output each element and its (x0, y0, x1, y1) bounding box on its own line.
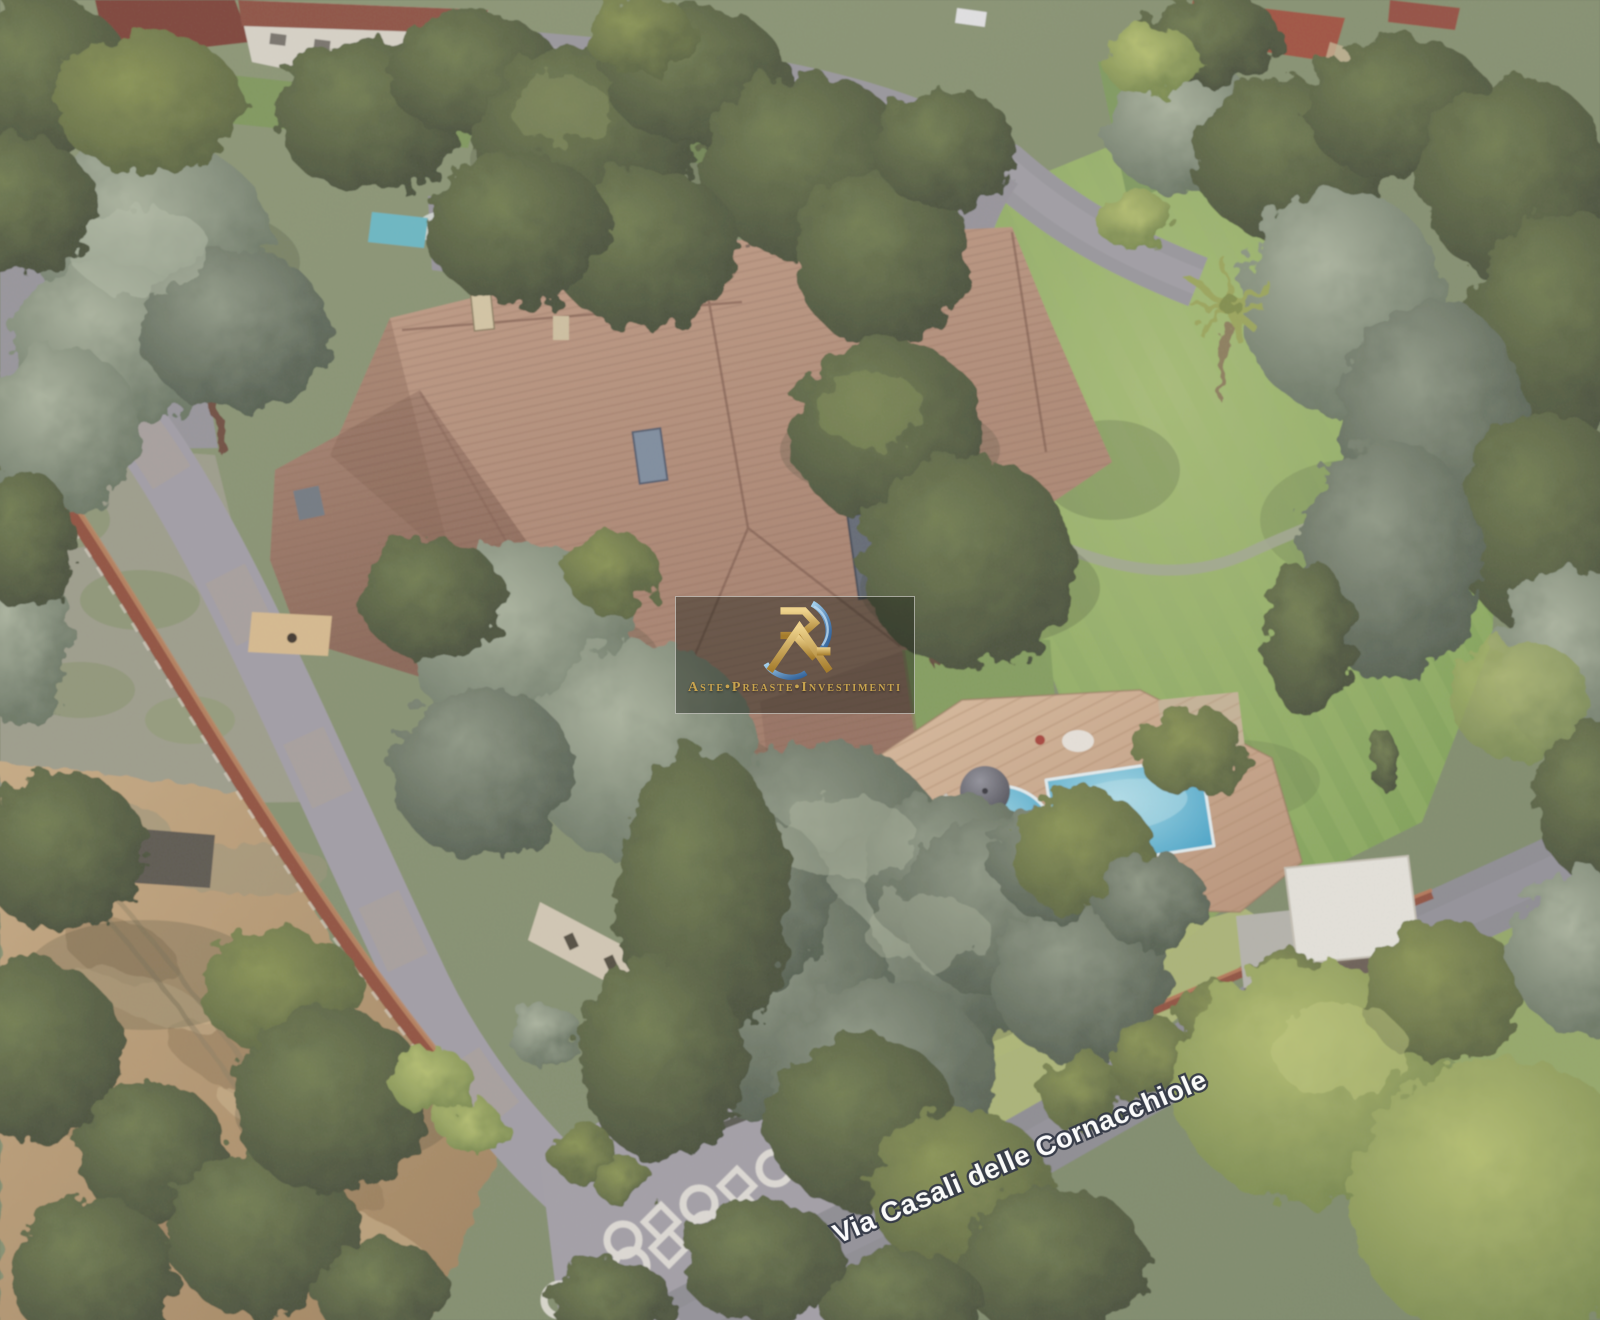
brand-logo-icon (749, 600, 841, 680)
brand-text: Aste•Preaste•Investimenti (688, 680, 902, 696)
watermark: Aste•Preaste•Investimenti (675, 596, 915, 714)
aerial-map-viewport[interactable]: Via Casali delle Cornacchiole Aste•Preas… (0, 0, 1600, 1320)
